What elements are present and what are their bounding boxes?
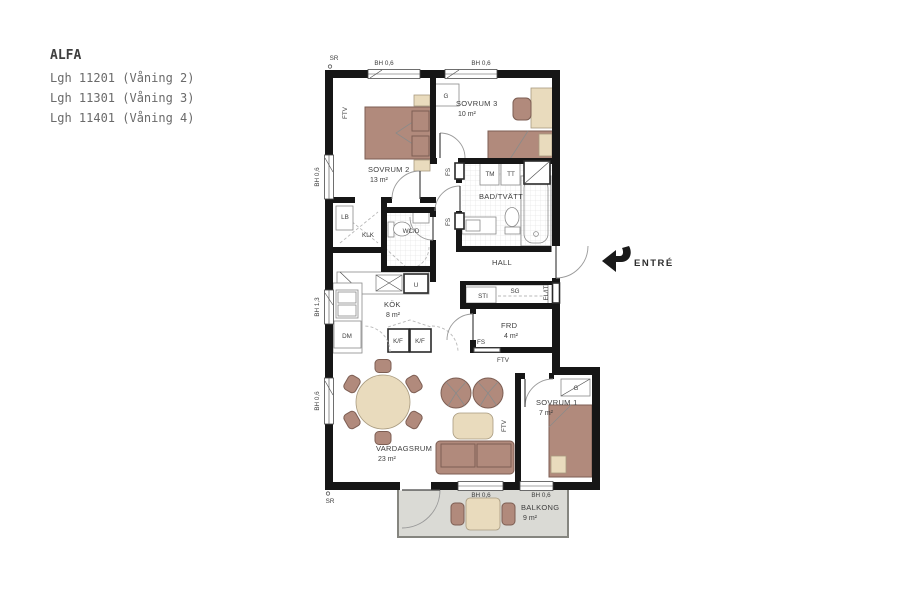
sovrum1-furniture [549, 379, 592, 477]
window-mark: BH 1,3 [314, 297, 321, 317]
window-mark: BH 0,6 [314, 167, 321, 187]
room-label-kok: KÖK [384, 300, 401, 309]
desk-chair [513, 98, 531, 120]
label-dm: DM [342, 333, 352, 340]
window [368, 70, 420, 79]
sovrum3-furniture [433, 84, 557, 159]
fs-shaft [455, 213, 464, 229]
svg-text:SR: SR [326, 498, 335, 505]
room-area-kok: 8 m² [386, 312, 401, 319]
window [325, 155, 334, 199]
label-lb: LB [341, 214, 349, 221]
duct-shaft [524, 161, 550, 184]
door-bathroom [435, 186, 460, 211]
section-mark-top: SR [328, 55, 339, 68]
single-bed [549, 405, 592, 477]
room-area-sovrum3: 10 m² [458, 111, 477, 118]
room-area-sovrum1: 7 m² [539, 410, 554, 417]
fs-shaft [455, 163, 464, 179]
label-kf: K/F [393, 338, 403, 345]
door-sovrum3 [440, 133, 465, 158]
window-mark: BH 0,6 [531, 492, 551, 499]
door-entry [552, 246, 589, 278]
double-bed [365, 107, 431, 159]
label-klk: KLK [362, 232, 375, 239]
balcony-table [466, 498, 500, 530]
sofa [436, 441, 514, 474]
armchair [473, 378, 503, 408]
label-fs: FS [445, 168, 452, 176]
entry-label: ENTRÉ [634, 258, 674, 269]
armchair [441, 378, 471, 408]
window-mark: BH 0,6 [471, 60, 491, 67]
label-g: G [574, 385, 579, 392]
vanity-sink [462, 217, 496, 234]
room-label-balkong: BALKONG [521, 503, 559, 512]
label-sg: SG [510, 288, 519, 295]
room-label-bad: BAD/TVÄTT [479, 192, 523, 201]
entry-marker: ENTRÉ [602, 246, 674, 272]
elit-shaft [553, 283, 560, 303]
dining-table [356, 375, 410, 429]
room-label-sovrum3: SOVRUM 3 [456, 99, 498, 108]
room-label-sovrum1: SOVRUM 1 [536, 398, 578, 407]
label-fs: FS [477, 339, 485, 346]
nightstand [414, 160, 430, 171]
room-label-hall: HALL [492, 258, 512, 267]
window-mark: BH 0,6 [374, 60, 394, 67]
label-fs: FS [445, 218, 452, 226]
room-area-sovrum2: 13 m² [370, 177, 389, 184]
window [458, 482, 503, 491]
room-label-frd: FRD [501, 321, 518, 330]
label-u: U [414, 282, 419, 289]
label-tm: TM [485, 171, 494, 178]
sovrum2-furniture [365, 95, 431, 171]
label-sti: STI [478, 293, 488, 300]
svg-text:SR: SR [330, 55, 339, 62]
door-sovrum2 [392, 171, 420, 199]
window [445, 70, 497, 79]
wash-basin [413, 212, 429, 223]
window-mark: BH 0,6 [314, 391, 321, 411]
room-label-vardagsrum: VARDAGSRUM [376, 444, 432, 453]
label-wcd: WC/D [403, 228, 420, 235]
floor-plan-page: ALFA Lgh 11201 (Våning 2) Lgh 11301 (Vån… [0, 0, 900, 600]
toilet [505, 208, 520, 235]
window-mark: BH 0,6 [471, 492, 491, 499]
single-bed [488, 131, 555, 159]
label-elit: EL/IT [543, 285, 550, 300]
window [325, 378, 334, 424]
room-label-sovrum2: SOVRUM 2 [368, 165, 410, 174]
label-g: G [444, 93, 449, 100]
label-tt: TT [507, 171, 515, 178]
label-ftv: FTV [501, 419, 508, 432]
floor-plan-drawing: ENTRÉ SOVRUM 2 13 m² SOVRUM 3 10 m² BAD/… [0, 0, 900, 600]
label-kf: K/F [415, 338, 425, 345]
vardagsrum-furniture [342, 360, 514, 475]
hall-closets [464, 285, 548, 305]
room-area-balkong: 9 m² [523, 515, 538, 522]
room-area-vardagsrum: 23 m² [378, 456, 397, 463]
window [325, 290, 334, 324]
entry-arrow-icon [602, 246, 631, 272]
label-ftv: FTV [342, 106, 349, 119]
room-area-frd: 4 m² [504, 333, 519, 340]
fridge-freezer [388, 320, 431, 352]
nightstand [414, 95, 430, 106]
label-ftv: FTV [497, 357, 510, 364]
coffee-table [453, 413, 493, 439]
window [520, 482, 553, 491]
door-frd [447, 314, 473, 340]
section-mark-bottom: SR [326, 492, 335, 505]
